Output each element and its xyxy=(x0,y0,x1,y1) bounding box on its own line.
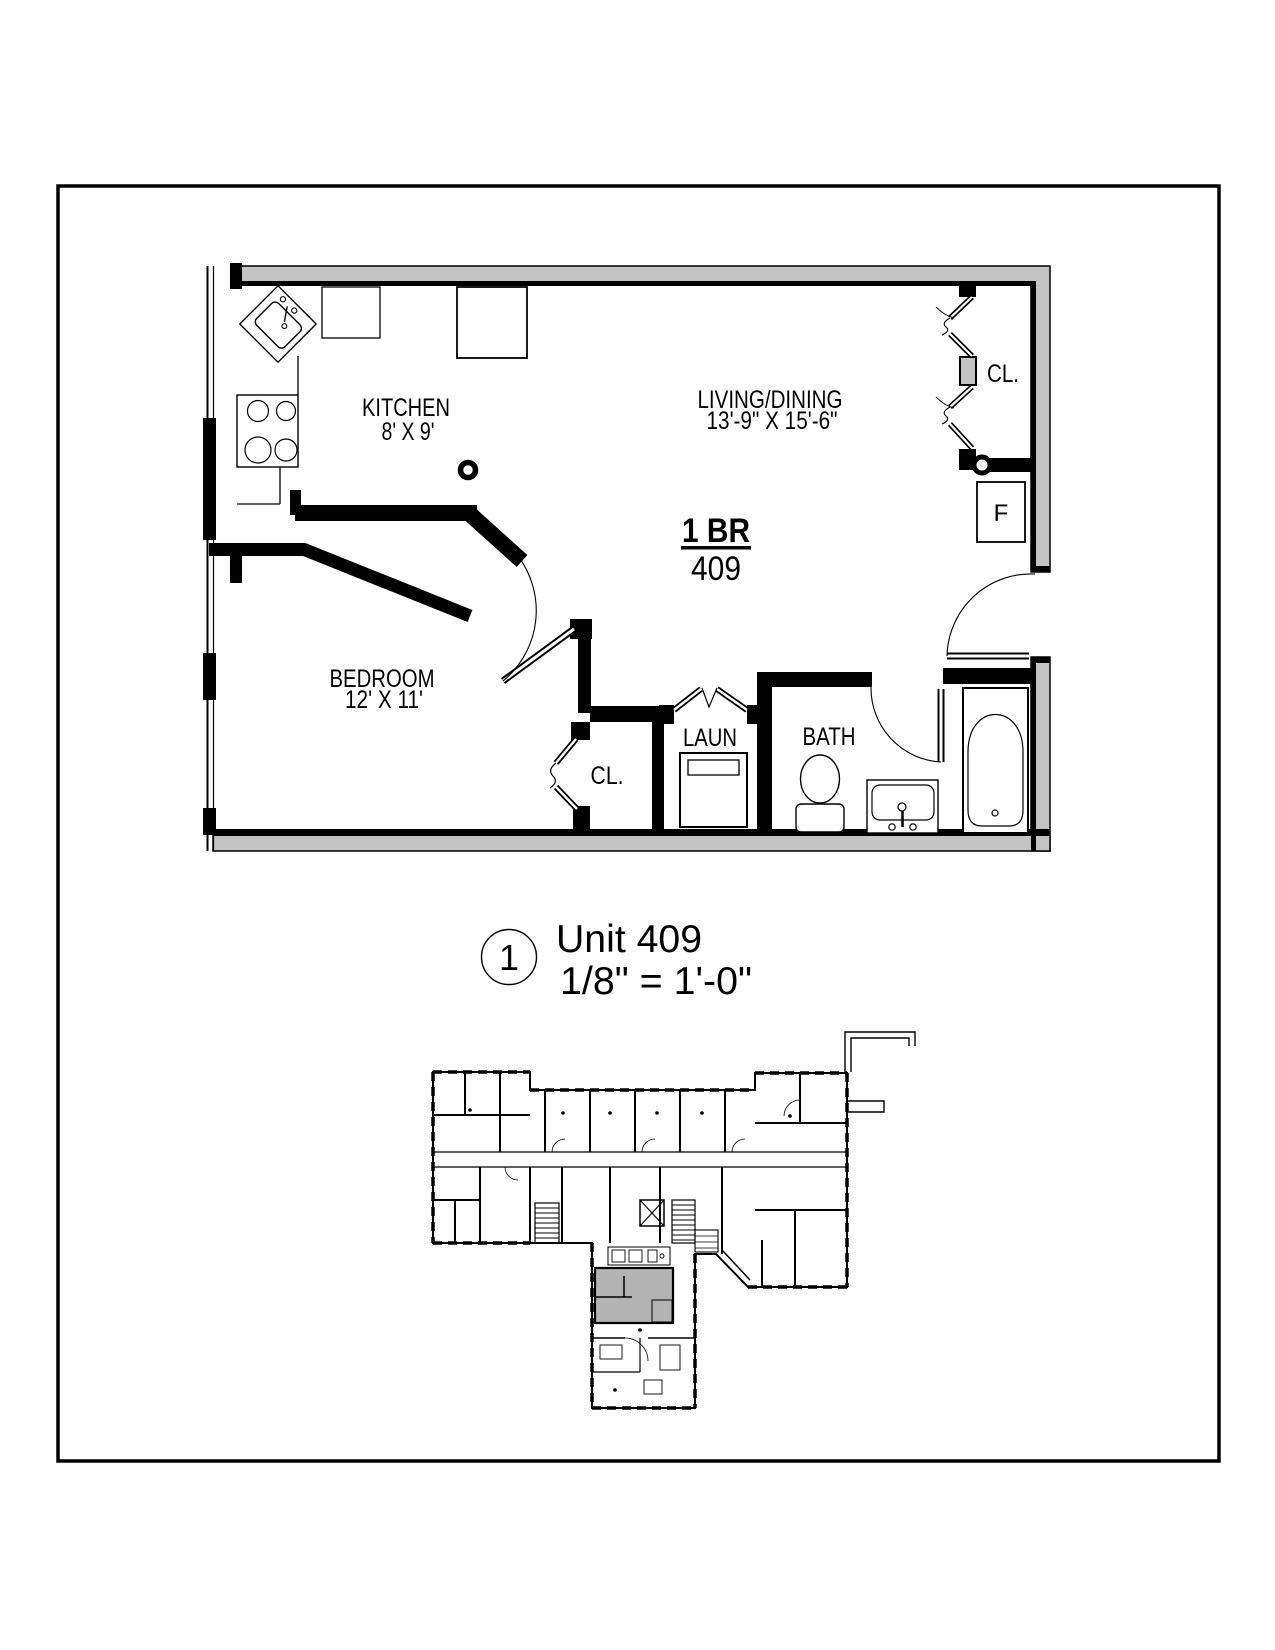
drawing-sheet: KITCHEN 8' X 9' LIVING/DINING 13'-9" X 1… xyxy=(0,0,1275,1650)
unit-number-label: 409 xyxy=(691,550,741,588)
bottom-wall xyxy=(213,835,1050,851)
bathroom-sink-icon xyxy=(867,780,938,833)
living-dining-dims: 13'-9" X 15'-6" xyxy=(707,407,838,435)
kitchen-dims: 8' X 9' xyxy=(382,418,435,446)
unit-type-label: 1 BR xyxy=(682,512,750,550)
laundry-label: LAUN xyxy=(683,724,737,752)
laundry-bifold xyxy=(674,688,747,710)
detail-scale: 1/8" = 1'-0" xyxy=(560,960,752,1003)
bathtub-icon xyxy=(963,688,1028,833)
toilet-icon xyxy=(796,755,844,832)
bedroom-closet-bifold xyxy=(550,739,577,809)
key-plan xyxy=(433,1032,915,1408)
unit-type-underline xyxy=(681,546,751,550)
stove-icon xyxy=(237,395,298,467)
closet-jamb-block xyxy=(960,357,976,385)
column-icon xyxy=(461,463,476,478)
corridor-walls xyxy=(295,513,522,616)
entry-door-swing xyxy=(947,574,1035,656)
dishwasher-icon xyxy=(322,287,380,338)
bedroom-dims: 12' X 11' xyxy=(345,686,423,714)
bedroom-closet-label: CL. xyxy=(591,762,624,790)
detail-number: 1 xyxy=(499,937,519,978)
detail-title: Unit 409 xyxy=(556,918,702,961)
title-block: 1 Unit 409 1/8" = 1'-0" xyxy=(482,918,753,1003)
washer-icon xyxy=(680,753,747,827)
closet-pivot-icon xyxy=(974,457,990,473)
kitchen-sink-icon xyxy=(240,286,316,362)
highlighted-unit xyxy=(595,1268,673,1323)
refrigerator-label: F xyxy=(994,500,1009,527)
floor-plan-drawing: KITCHEN 8' X 9' LIVING/DINING 13'-9" X 1… xyxy=(0,0,1275,1650)
pantry-cabinet-icon xyxy=(457,287,527,358)
key-plan-appendage xyxy=(845,1032,915,1112)
living-closet-label: CL. xyxy=(987,360,1019,388)
unit-floor-plan: KITCHEN 8' X 9' LIVING/DINING 13'-9" X 1… xyxy=(203,263,1050,851)
bath-label: BATH xyxy=(803,723,856,751)
bath-door-swing xyxy=(871,687,941,762)
